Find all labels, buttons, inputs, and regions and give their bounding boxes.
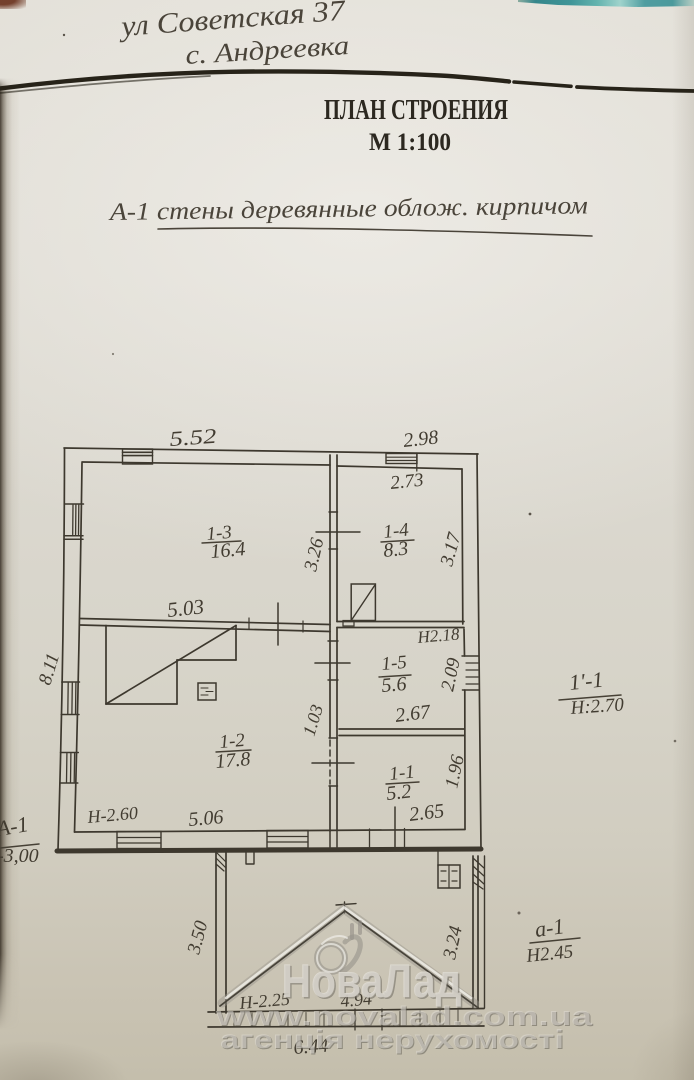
- svg-text:Н-2.60: Н-2.60: [86, 803, 139, 827]
- svg-text:5.2: 5.2: [385, 780, 412, 804]
- svg-text:А-1: А-1: [0, 811, 30, 841]
- svg-text:2.98: 2.98: [402, 426, 439, 452]
- svg-text:3.26: 3.26: [300, 536, 328, 575]
- svg-text:1′-1: 1′-1: [568, 667, 605, 695]
- svg-text:а-1: а-1: [533, 913, 566, 942]
- svg-text:2.67: 2.67: [394, 701, 432, 727]
- svg-text:2.73: 2.73: [389, 470, 424, 494]
- svg-text:НоваЛад: НоваЛад: [282, 955, 462, 1008]
- svg-text:Н:2.70: Н:2.70: [569, 694, 625, 719]
- svg-text:1.03: 1.03: [299, 702, 327, 738]
- svg-text:3.50: 3.50: [183, 918, 212, 957]
- svg-text:А-1 стены деревянные облож.: А-1 стены деревянные облож. кирпичом: [107, 192, 588, 226]
- svg-text:8.3: 8.3: [382, 537, 409, 561]
- svg-text:-3,00: -3,00: [0, 845, 39, 867]
- svg-text:М 1:100: М 1:100: [369, 129, 451, 156]
- svg-text:1-5: 1-5: [381, 652, 408, 675]
- svg-text:Н2.45: Н2.45: [524, 941, 574, 967]
- svg-text:16.4: 16.4: [210, 538, 247, 563]
- svg-text:агенція нерухомості: агенція нерухомості: [220, 1024, 564, 1054]
- svg-text:17.8: 17.8: [215, 748, 252, 773]
- svg-text:3.17: 3.17: [436, 529, 466, 569]
- svg-text:Н2.18: Н2.18: [416, 624, 461, 647]
- svg-text:5.6: 5.6: [381, 673, 408, 697]
- svg-text:5.06: 5.06: [188, 806, 225, 831]
- svg-text:5.52: 5.52: [169, 424, 218, 451]
- svg-text:ПЛАН СТРОЕНИЯ: ПЛАН СТРОЕНИЯ: [324, 94, 508, 126]
- svg-text:2.09: 2.09: [437, 656, 465, 693]
- svg-text:5.03: 5.03: [166, 594, 205, 622]
- svg-text:2.65: 2.65: [408, 800, 445, 826]
- svg-text:8.11: 8.11: [35, 651, 64, 688]
